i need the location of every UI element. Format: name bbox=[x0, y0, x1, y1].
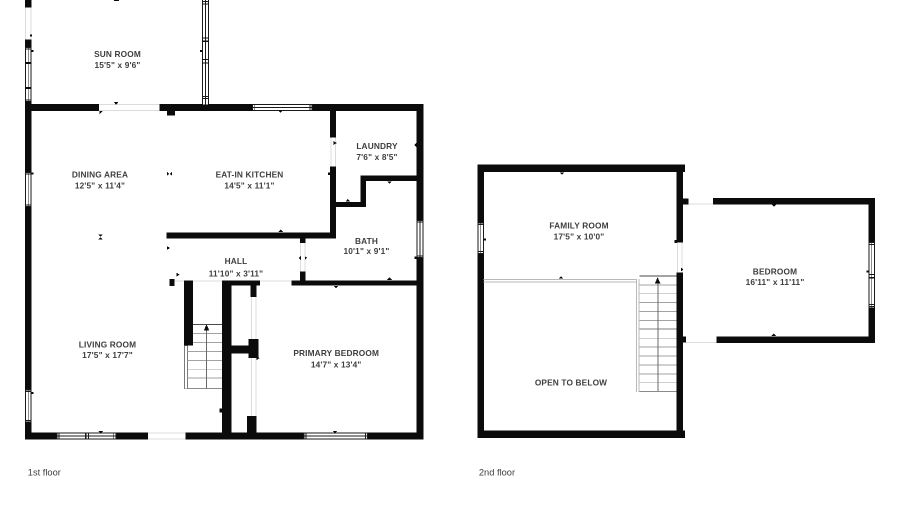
svg-text:2nd floor: 2nd floor bbox=[479, 468, 515, 478]
svg-text:FAMILY ROOM: FAMILY ROOM bbox=[549, 221, 608, 231]
svg-text:SUN ROOM: SUN ROOM bbox=[94, 49, 141, 59]
svg-text:17'5" x 17'7": 17'5" x 17'7" bbox=[82, 350, 133, 360]
svg-text:16'11" x 11'11": 16'11" x 11'11" bbox=[746, 277, 805, 287]
svg-text:DINING AREA: DINING AREA bbox=[72, 169, 128, 179]
svg-text:10'1" x 9'1": 10'1" x 9'1" bbox=[344, 246, 390, 256]
svg-text:PRIMARY BEDROOM: PRIMARY BEDROOM bbox=[293, 348, 379, 358]
svg-text:14'5" x 11'1": 14'5" x 11'1" bbox=[224, 181, 274, 191]
svg-text:OPEN TO BELOW: OPEN TO BELOW bbox=[535, 378, 607, 388]
svg-text:BEDROOM: BEDROOM bbox=[753, 266, 797, 276]
svg-text:12'5" x 11'4": 12'5" x 11'4" bbox=[75, 181, 125, 191]
svg-text:BATH: BATH bbox=[355, 236, 378, 246]
svg-text:17'5" x 10'0": 17'5" x 10'0" bbox=[554, 232, 605, 242]
svg-text:EAT-IN KITCHEN: EAT-IN KITCHEN bbox=[216, 169, 284, 179]
svg-text:15'5" x 9'6": 15'5" x 9'6" bbox=[95, 60, 141, 70]
svg-text:LIVING ROOM: LIVING ROOM bbox=[79, 339, 136, 349]
svg-text:HALL: HALL bbox=[225, 256, 248, 266]
svg-text:14'7" x 13'4": 14'7" x 13'4" bbox=[311, 359, 362, 369]
svg-text:11'10" x 3'11": 11'10" x 3'11" bbox=[209, 269, 264, 279]
svg-text:1st floor: 1st floor bbox=[28, 468, 61, 478]
svg-text:LAUNDRY: LAUNDRY bbox=[356, 141, 398, 151]
svg-text:7'6" x 8'5": 7'6" x 8'5" bbox=[356, 152, 397, 162]
